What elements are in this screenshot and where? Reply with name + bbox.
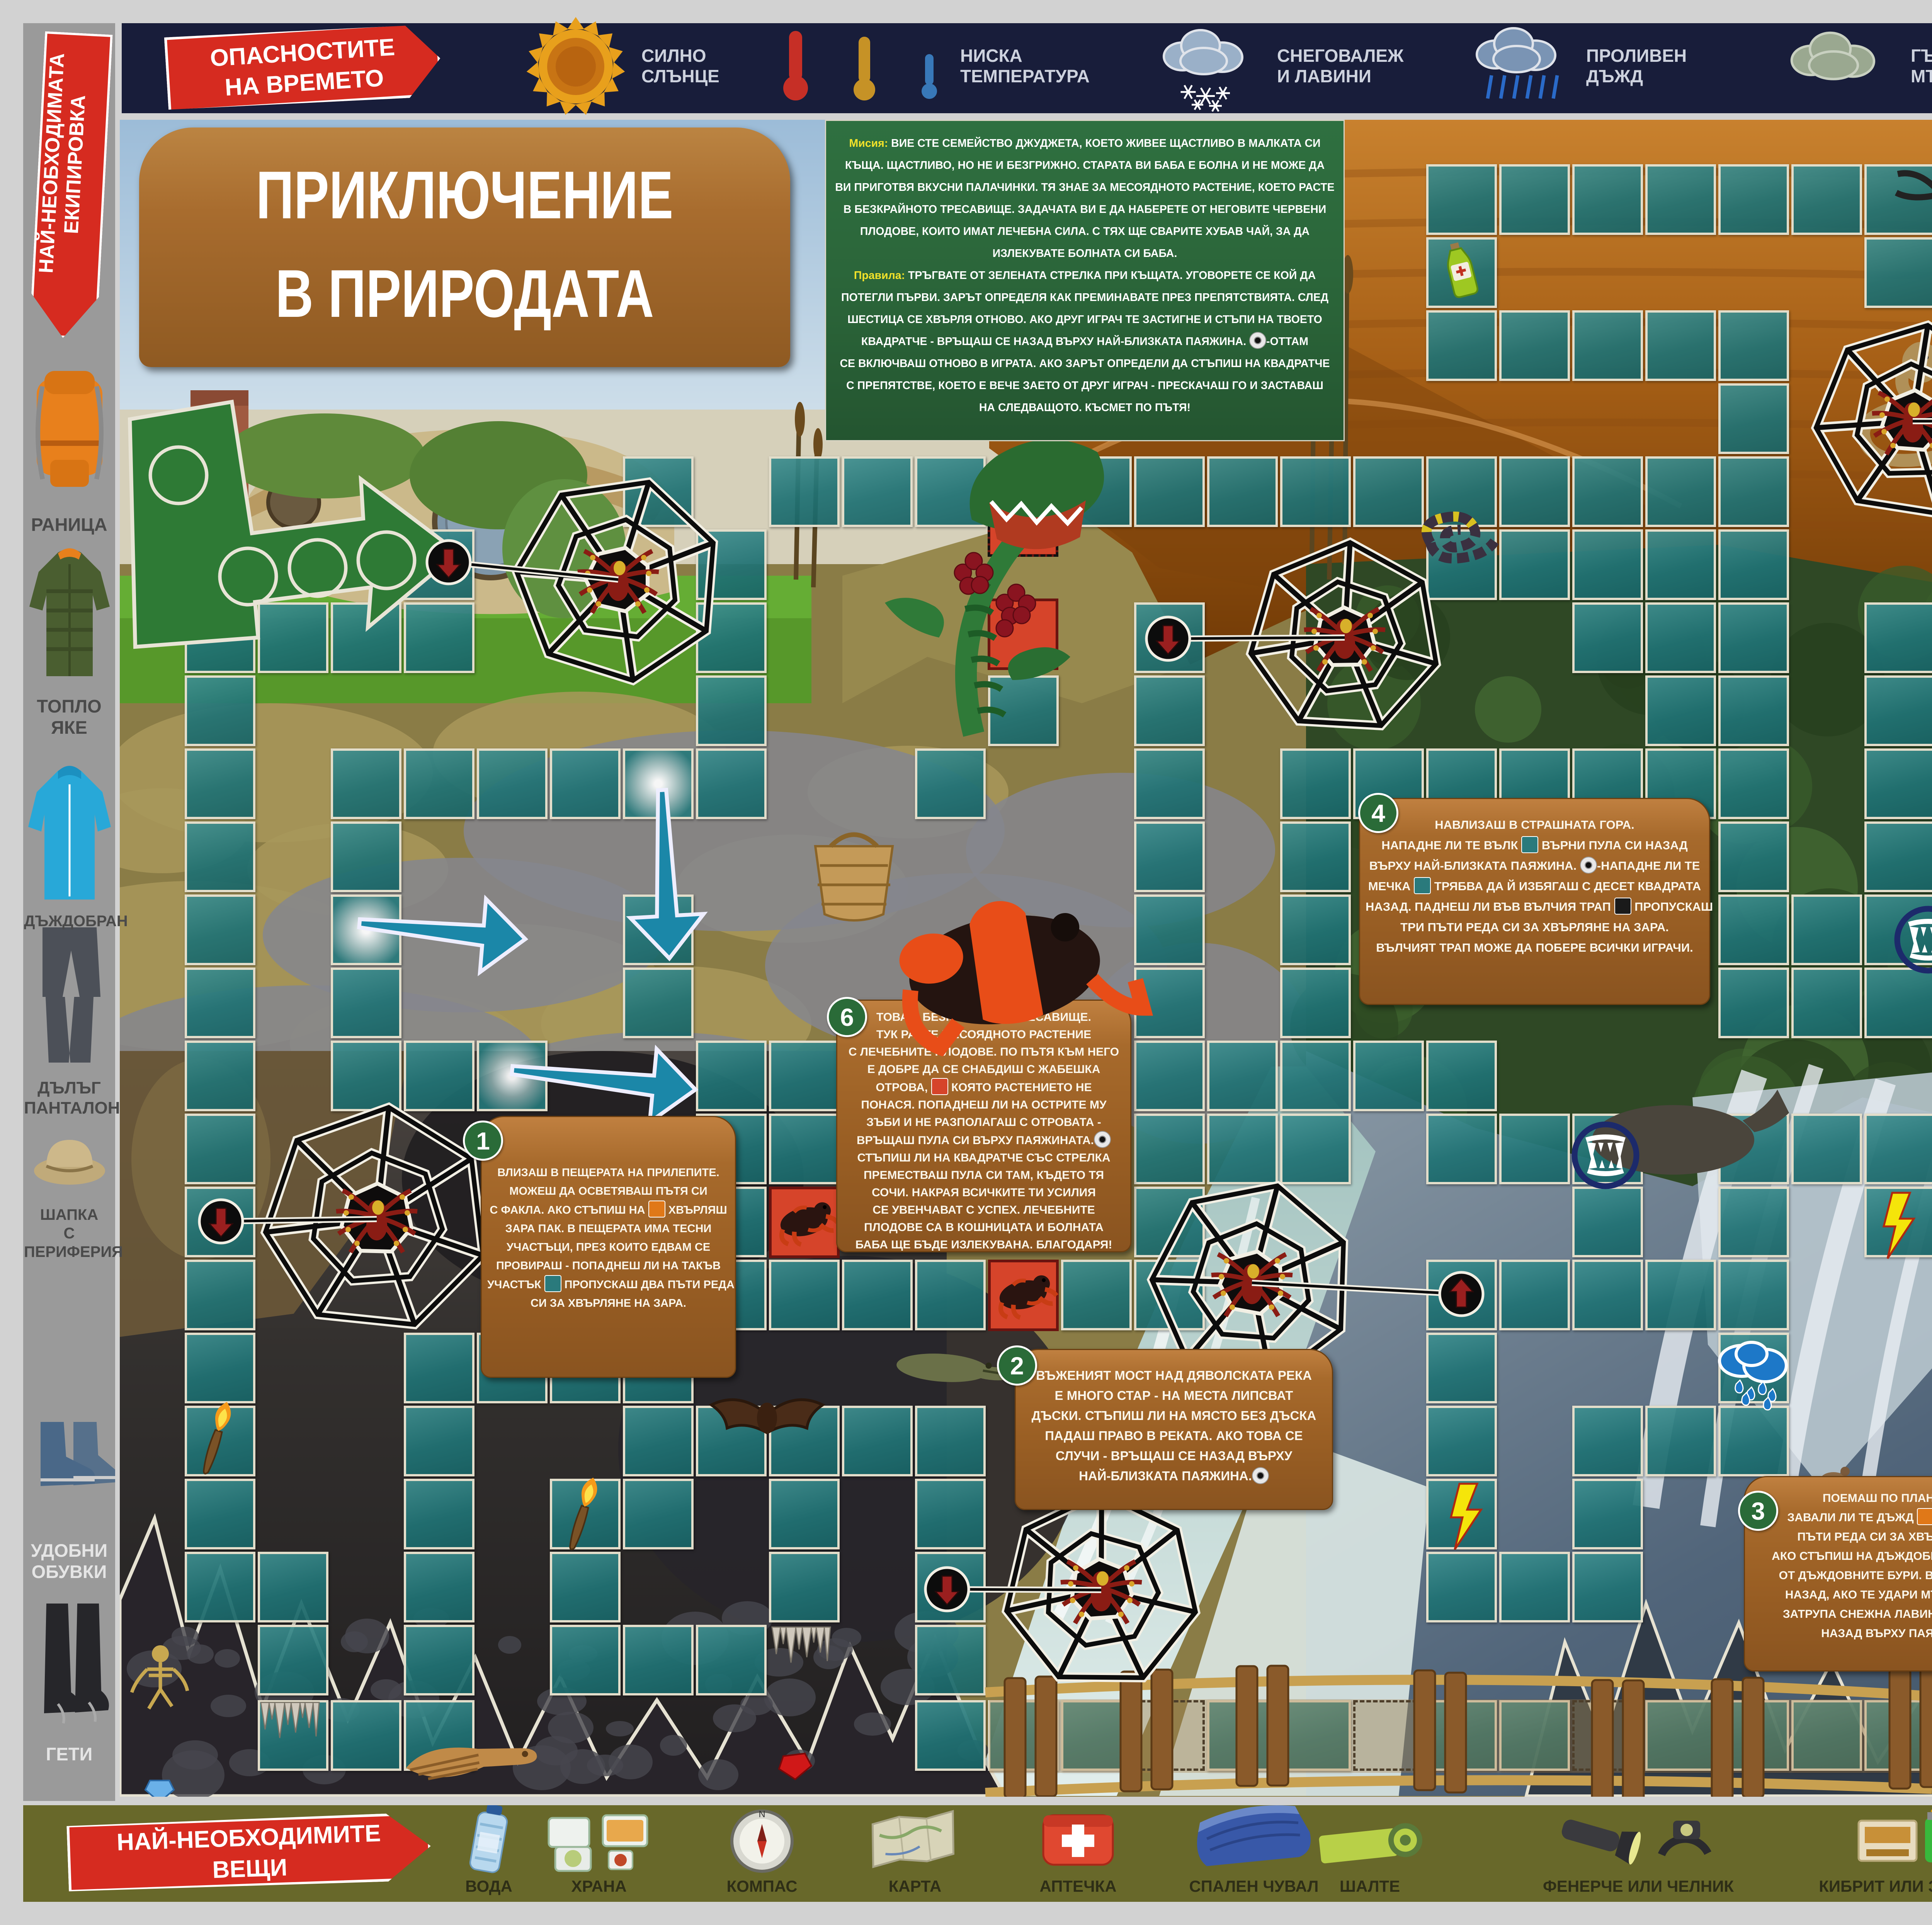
svg-text:N: N <box>759 1809 765 1820</box>
